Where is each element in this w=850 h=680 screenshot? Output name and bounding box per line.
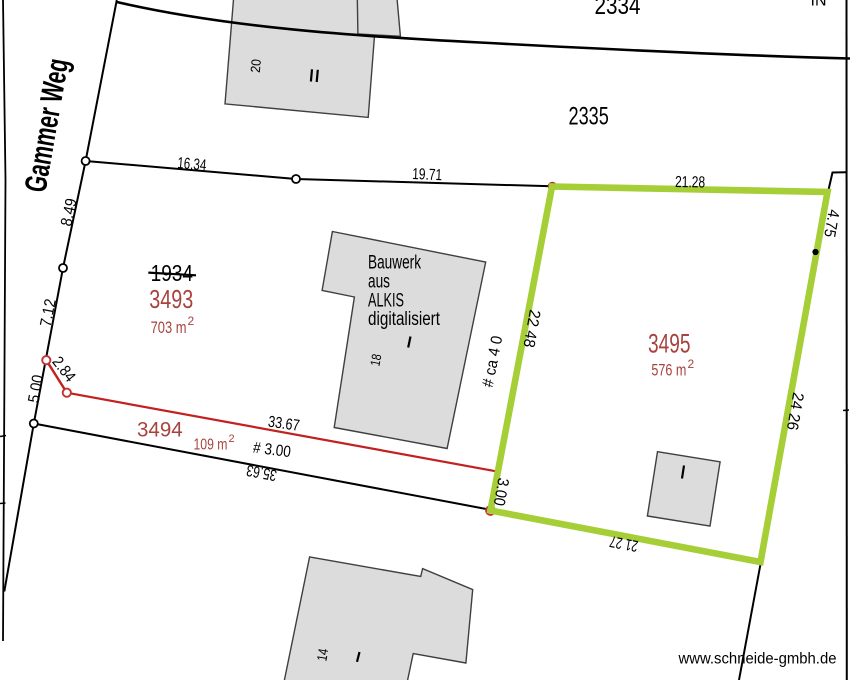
svg-text:2334: 2334 [595,0,641,20]
svg-text:576 m: 576 m [651,361,686,380]
svg-text:2: 2 [688,357,695,371]
svg-text:aus: aus [368,272,390,293]
svg-text:703 m: 703 m [151,318,187,337]
svg-text:2: 2 [229,433,235,445]
svg-text:IN: IN [811,0,827,10]
svg-text:3495: 3495 [648,328,691,358]
svg-text:21.28: 21.28 [675,174,705,192]
svg-text:109 m: 109 m [194,437,228,454]
svg-text:2: 2 [188,314,195,328]
svg-text:2335: 2335 [569,103,609,131]
svg-text:3493: 3493 [149,284,193,314]
svg-text:Bauwerk: Bauwerk [368,253,421,274]
svg-text:digitalisiert: digitalisiert [368,309,441,330]
svg-text:16.34: 16.34 [177,155,207,174]
svg-text:19.71: 19.71 [412,166,443,184]
svg-text:20: 20 [248,59,264,74]
svg-text:www.schneide-gmbh.de: www.schneide-gmbh.de [678,651,837,668]
svg-text:3494: 3494 [137,419,183,442]
